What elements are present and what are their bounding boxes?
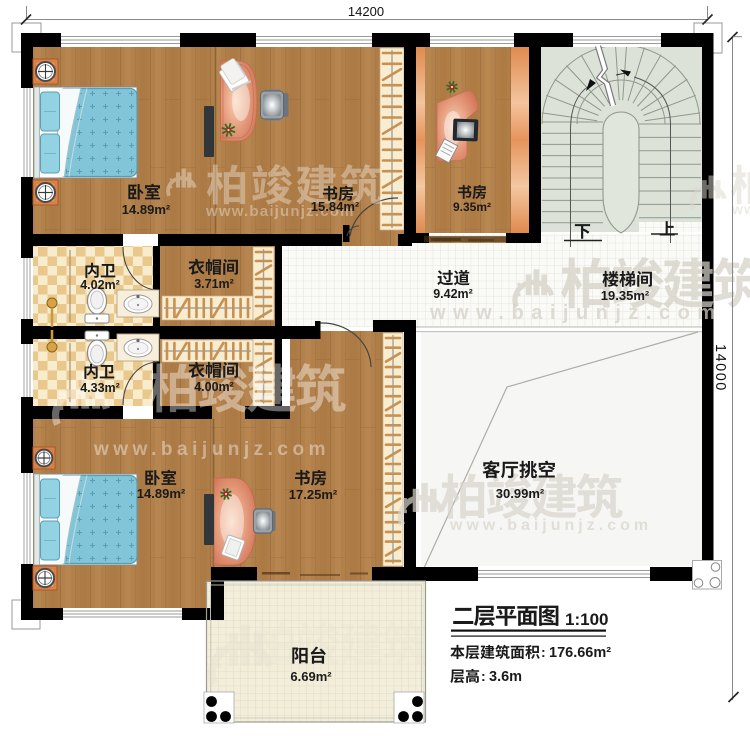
svg-text:www.baijunjz.com: www.baijunjz.com bbox=[731, 201, 750, 217]
svg-text:15.84m²: 15.84m² bbox=[311, 199, 360, 214]
svg-text::: : bbox=[541, 644, 546, 660]
svg-text:9.42m²: 9.42m² bbox=[433, 287, 473, 301]
svg-text::: : bbox=[481, 668, 486, 684]
svg-text:www.baijunjz.com: www.baijunjz.com bbox=[429, 302, 723, 324]
svg-text:3.71m²: 3.71m² bbox=[194, 277, 234, 291]
svg-text:19.35m²: 19.35m² bbox=[601, 288, 650, 303]
svg-text:4.33m²: 4.33m² bbox=[80, 381, 120, 395]
svg-text:17.25m²: 17.25m² bbox=[289, 487, 338, 502]
svg-text:6.69m²: 6.69m² bbox=[290, 669, 332, 684]
svg-text:4.02m²: 4.02m² bbox=[80, 278, 120, 292]
svg-text:14.89m²: 14.89m² bbox=[137, 486, 186, 501]
svg-text:14.89m²: 14.89m² bbox=[122, 202, 171, 217]
svg-text:www.baijunjz.com: www.baijunjz.com bbox=[449, 517, 652, 534]
svg-text:www.baijunjz.com: www.baijunjz.com bbox=[93, 439, 330, 460]
svg-text:9.35m²: 9.35m² bbox=[453, 200, 491, 214]
svg-text:4.00m²: 4.00m² bbox=[194, 380, 234, 394]
svg-text:14200: 14200 bbox=[348, 4, 384, 19]
svg-text:3.6m: 3.6m bbox=[489, 669, 522, 685]
svg-text:30.99m²: 30.99m² bbox=[496, 486, 545, 501]
svg-text:1:100: 1:100 bbox=[565, 610, 608, 629]
svg-text:14000: 14000 bbox=[712, 344, 728, 392]
svg-text:176.66m²: 176.66m² bbox=[549, 645, 611, 661]
